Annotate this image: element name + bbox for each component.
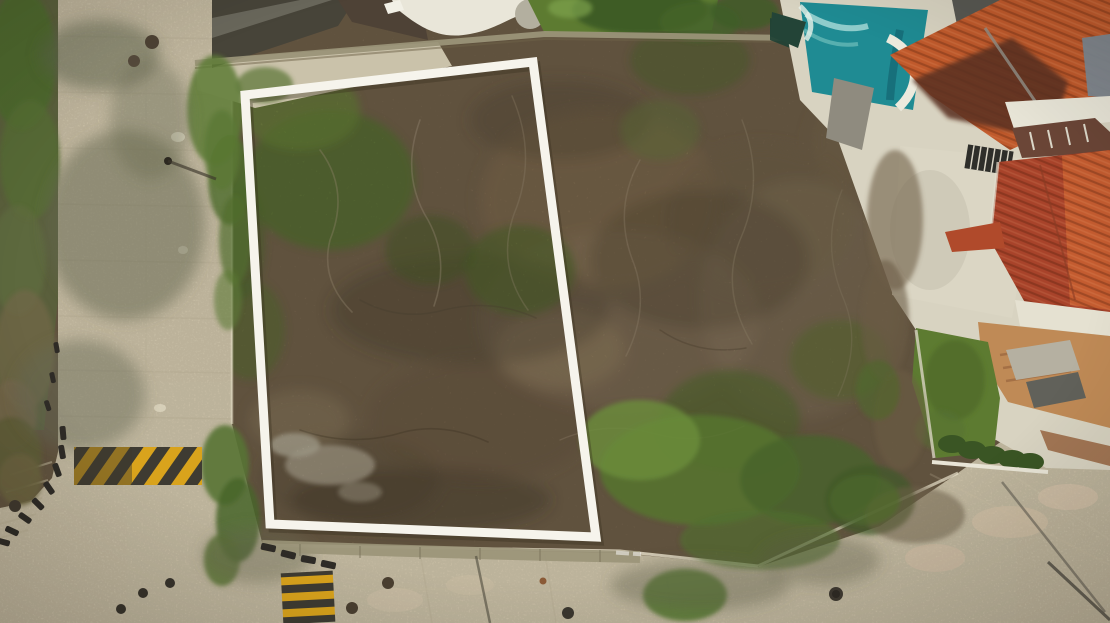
vignette: [0, 0, 1110, 623]
aerial-photo: [0, 0, 1110, 623]
